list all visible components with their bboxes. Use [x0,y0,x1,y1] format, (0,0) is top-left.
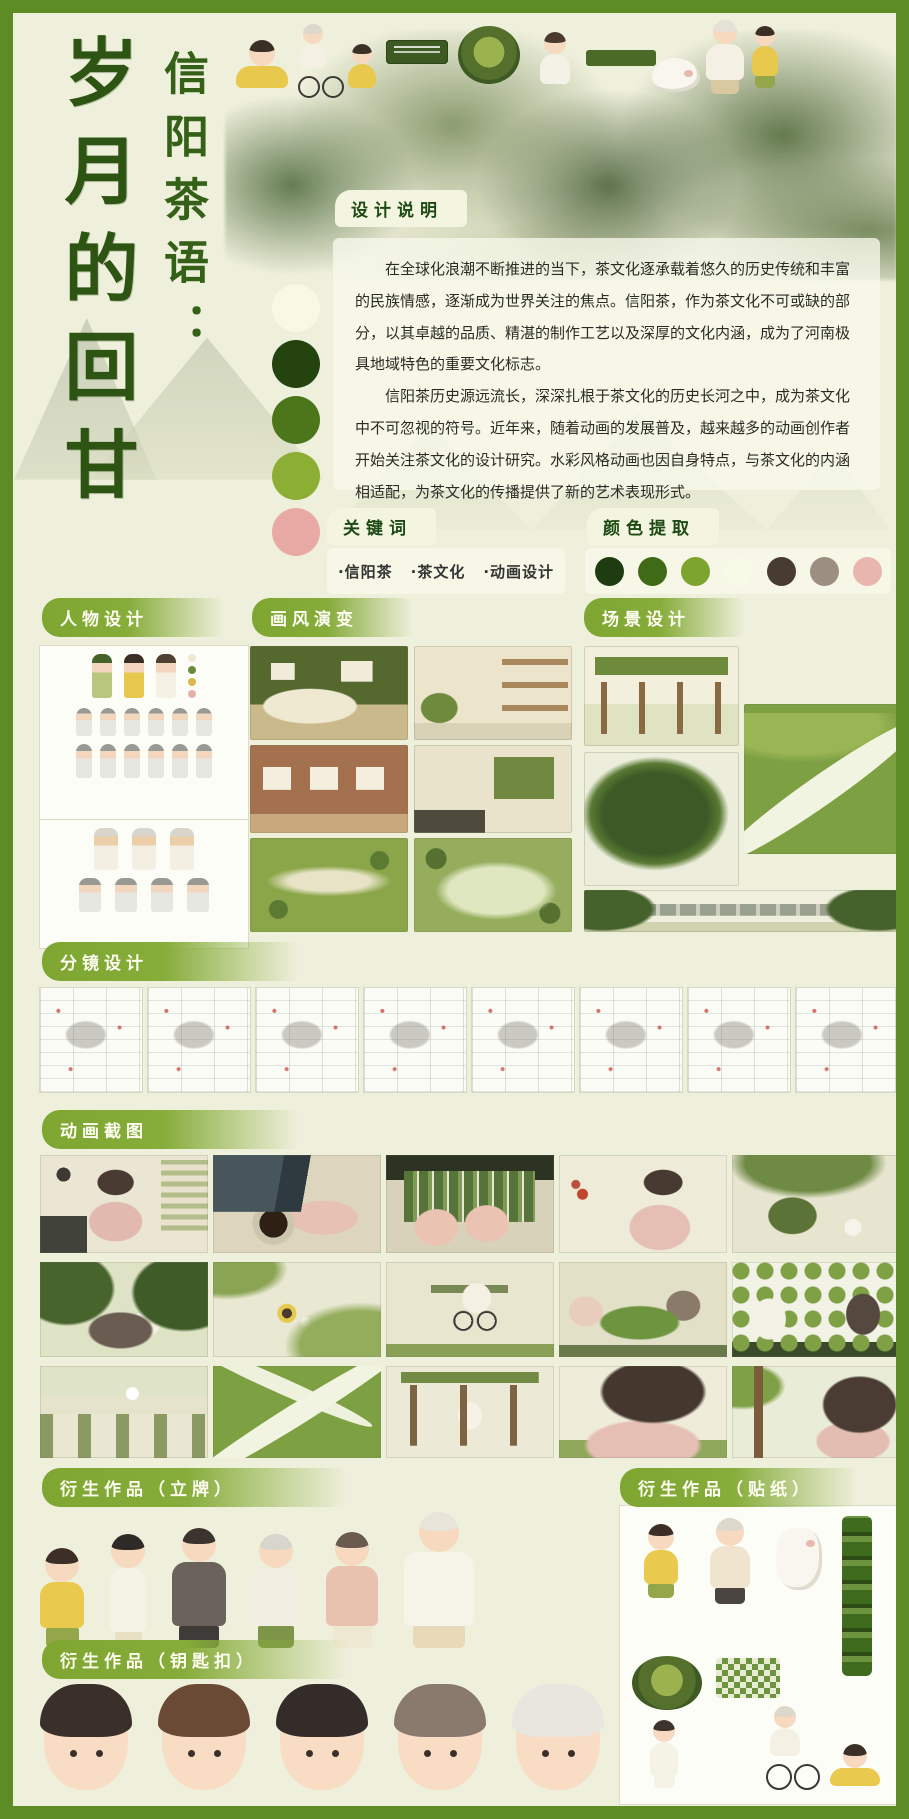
poster-frame-bottom [0,1806,909,1819]
girl-body [236,66,288,88]
figure [100,708,116,736]
figure [196,744,212,778]
sticker-tea-bowl [632,1656,702,1710]
girl-body [540,54,570,84]
figure [124,744,140,778]
figure [132,828,156,870]
palette-panel [585,548,891,594]
style-image-brown-room [250,745,408,833]
color-swatch [681,557,710,586]
still-girl-windblown [559,1366,727,1458]
poster-frame-right [896,0,909,1819]
character-sketch-row [48,744,240,778]
still-girl-at-pavilion [386,1366,554,1458]
grandpa-turnaround-card [40,820,248,948]
stills-row-2 [40,1262,900,1357]
body [110,1568,146,1632]
sticker-card [620,1506,897,1804]
girl-body [752,46,778,76]
head [843,1744,867,1768]
pig-illustration [652,58,700,92]
storyboard-page [472,988,574,1092]
figure [124,654,144,698]
grandpa-legs [711,80,740,94]
character-turnaround-card [40,646,248,832]
design-note-panel: 在全球化浪潮不断推进的当下，茶文化逐承载着悠久的历史传统和丰富的民族情感，逐渐成… [333,238,880,490]
section-stills: 动画截图 [42,1110,310,1149]
scene-image-hills-river [744,704,897,854]
keychain-girl-pigtails [44,1688,128,1790]
bench-sign-illustration [586,50,656,66]
character-sketch-row [48,708,240,736]
figure [172,708,188,736]
style-image-green-living-room [250,646,408,740]
figure [76,708,92,736]
section-style-evolution: 画风演变 [252,598,420,637]
still-typing-keyboard [386,1155,554,1253]
style-image-shelf-room [414,646,572,740]
section-standee: 衍生作品（立牌） [42,1468,360,1507]
character-color-row [48,654,240,698]
section-scene-design: 场景设计 [584,598,752,637]
poster-frame-left [0,0,13,1819]
figure [770,1706,800,1756]
color-swatch [810,557,839,586]
standee-girl-white-dress [110,1534,146,1648]
head [648,1524,674,1550]
body [830,1768,880,1786]
sticker-girl-white [650,1720,678,1788]
storyboard-row [40,988,898,1092]
body [326,1566,378,1626]
dot [188,666,196,674]
still-tea-picking [559,1262,727,1357]
still-grandpa-bicycle-stand [386,1262,554,1357]
side-color-dot [272,396,320,444]
legs [715,1588,745,1604]
head [45,1548,79,1582]
legs [654,1776,675,1788]
storyboard-page [688,988,790,1092]
crouching-girl-illustration [348,44,376,88]
keyword-item: ·茶文化 [411,561,466,582]
keyword-item: ·信阳茶 [338,561,393,582]
girl-head [352,44,372,64]
color-swatch [638,557,667,586]
palette-heading: 颜色提取 [587,508,719,545]
section-character-design: 人物设计 [42,598,232,637]
head [182,1528,216,1562]
grandpa-figure [300,24,326,68]
head [716,1518,744,1546]
dot [188,690,196,698]
head [774,1706,796,1728]
color-swatch [853,557,882,586]
design-note-heading: 设计说明 [335,190,467,227]
figure [148,708,164,736]
legs [648,1584,674,1598]
still-winding-road [213,1366,381,1458]
grandpa-body [706,44,744,80]
stills-row-3 [40,1366,900,1458]
still-girl-with-vase [559,1155,727,1253]
standee-woman-tan [326,1532,378,1648]
section-sticker: 衍生作品（贴纸） [620,1468,868,1507]
style-image-desk-room [414,745,572,833]
head [111,1534,145,1568]
figure [172,744,188,778]
girl-legs [755,76,775,88]
keyword-item: ·动画设计 [483,561,554,582]
still-family-under-trees [40,1262,208,1357]
girl-head [755,26,775,46]
storyboard-page [40,988,142,1092]
figure [170,828,194,870]
bicycle-wheel [766,1764,792,1790]
figure [115,878,137,912]
scene-image-tea-pavilion [584,646,739,746]
reclining-girl-illustration [236,40,288,88]
tea-plaque-illustration [386,40,448,64]
figure [187,878,209,912]
color-swatch [595,557,624,586]
body [404,1552,474,1626]
grandpa-illustration [706,20,744,94]
figure [94,828,118,870]
poster-title-prefix: 信阳茶语： [150,50,215,450]
storyboard-page [256,988,358,1092]
section-storyboard: 分镜设计 [42,942,310,981]
character-palette-dots [188,654,196,698]
section-keychain: 衍生作品（钥匙扣） [42,1640,360,1679]
body [644,1550,678,1584]
body [650,1742,678,1776]
bicycle-wheel [794,1764,820,1790]
scene-image-village-strip [584,890,897,932]
poster-title-main: 岁月的回甘 [42,34,149,594]
storyboard-page [796,988,898,1092]
still-girl-profile-trees [732,1366,900,1458]
storyboard-page [364,988,466,1092]
side-color-dot [272,340,320,388]
still-teabowl-pattern [732,1262,900,1357]
dot [188,654,196,662]
storyboard-page [148,988,250,1092]
grandpa-sketch-row [48,878,240,912]
head [259,1534,293,1568]
still-rocking-chair-cat [732,1155,900,1253]
girl-head [544,32,566,54]
style-image-pond [414,838,572,932]
grandpa-body [300,44,326,68]
figure [196,708,212,736]
keychain-woman-bun [398,1688,482,1790]
girl-body [348,64,376,88]
sticker-grandpa-bicycle [770,1706,800,1756]
body [252,1568,300,1626]
dot [188,678,196,686]
keychain-grandpa-mustache [516,1688,600,1790]
figure [100,744,116,778]
grandpa-head [303,24,323,44]
bicycle-wheel [322,76,344,98]
standing-girl-illustration [752,26,778,88]
keychain-boy-brown-hair [162,1688,246,1790]
figure [156,654,176,698]
poster-frame-top [0,0,909,13]
design-note-paragraph-2: 信阳茶历史源远流长，深深扎根于茶文化的历史长河之中，成为茶文化中不可忽视的符号。… [355,381,858,508]
grandpa-bicycle-illustration [300,24,326,68]
standee-grandpa-green-pants [252,1534,300,1648]
side-color-dot [272,284,320,332]
tea-bowl-illustration [458,26,520,84]
scene-image-dark-tree [584,752,739,886]
color-swatch [724,557,753,586]
sticker-girl-yellow [644,1524,678,1598]
head [335,1532,369,1566]
body [172,1562,226,1626]
sitting-girl-illustration [540,32,570,84]
figure [92,654,112,698]
standee-row [40,1506,610,1648]
head [653,1720,675,1742]
figure [76,744,92,778]
body [710,1546,750,1588]
standee-grandpa-big [404,1512,474,1648]
still-monitor-teacup [213,1155,381,1253]
sticker-grandpa [710,1518,750,1604]
side-color-dot [272,508,320,556]
color-swatch [767,557,796,586]
still-girl-by-shelf [40,1155,208,1253]
design-note-paragraph-1: 在全球化浪潮不断推进的当下，茶文化逐承载着悠久的历史传统和丰富的民族情感，逐渐成… [355,254,858,381]
keywords-panel: ·信阳茶 ·茶文化 ·动画设计 [327,548,565,594]
figure [124,708,140,736]
sticker-girl-reclining [830,1744,880,1786]
legs [413,1626,466,1648]
still-child-on-path [213,1262,381,1357]
figure [79,878,101,912]
keywords-heading: 关键词 [327,508,436,545]
storyboard-page [580,988,682,1092]
side-color-dot [272,452,320,500]
standee-girl-yellow [40,1548,84,1648]
still-train-interior [40,1366,208,1458]
body [770,1728,800,1756]
sticker-pig [776,1528,822,1590]
grandpa-color-row [48,828,240,870]
standee-man-gray-suit [172,1528,226,1648]
keychain-girl-grin [280,1688,364,1790]
body [40,1582,84,1628]
keychain-row [44,1688,604,1790]
head [419,1512,459,1552]
figure [151,878,173,912]
bicycle-wheel [298,76,320,98]
style-image-garden-bridge [250,838,408,932]
sticker-green-texture [716,1658,780,1698]
stills-row-1 [40,1155,900,1253]
girl-head [249,40,275,66]
grandpa-head [713,20,737,44]
poster: 岁月的回甘 信阳茶语： 设计说明 在全球化浪潮不断推进的当下，茶 [0,0,909,1819]
figure [148,744,164,778]
sticker-bamboo-strip [842,1516,872,1676]
